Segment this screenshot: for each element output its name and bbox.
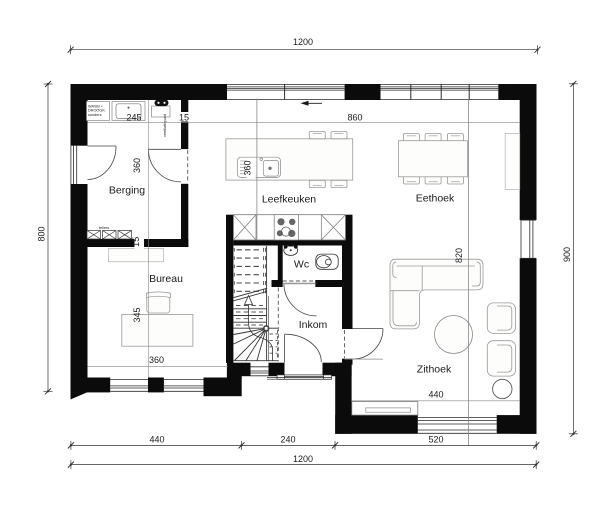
svg-text:Zithoek: Zithoek [417, 364, 452, 376]
svg-text:520: 520 [428, 435, 443, 445]
svg-text:tellers: tellers [99, 226, 109, 230]
svg-text:ventilatiepunt: ventilatiepunt [163, 113, 167, 137]
svg-text:Leefkeuken: Leefkeuken [262, 194, 316, 206]
svg-text:Berging: Berging [109, 185, 145, 197]
svg-text:Bureau: Bureau [149, 273, 183, 285]
svg-text:820: 820 [454, 248, 464, 263]
svg-text:440: 440 [428, 389, 443, 399]
svg-text:240: 240 [280, 435, 295, 445]
svg-text:245: 245 [126, 112, 141, 122]
svg-text:Eethoek: Eethoek [416, 193, 455, 205]
svg-text:sonders: sonders [88, 113, 102, 117]
svg-text:1200: 1200 [293, 37, 313, 47]
svg-text:Wc: Wc [294, 259, 309, 271]
svg-text:900: 900 [562, 247, 572, 262]
svg-text:440: 440 [149, 435, 164, 445]
svg-text:Inkom: Inkom [299, 319, 328, 331]
svg-text:1200: 1200 [293, 454, 313, 464]
svg-text:360: 360 [132, 158, 142, 173]
svg-text:360: 360 [149, 355, 164, 365]
svg-text:800: 800 [37, 226, 47, 241]
svg-text:360: 360 [243, 160, 253, 175]
svg-text:15: 15 [131, 237, 141, 247]
svg-text:860: 860 [347, 112, 362, 122]
svg-text:15: 15 [179, 112, 189, 122]
svg-text:345: 345 [132, 307, 142, 322]
